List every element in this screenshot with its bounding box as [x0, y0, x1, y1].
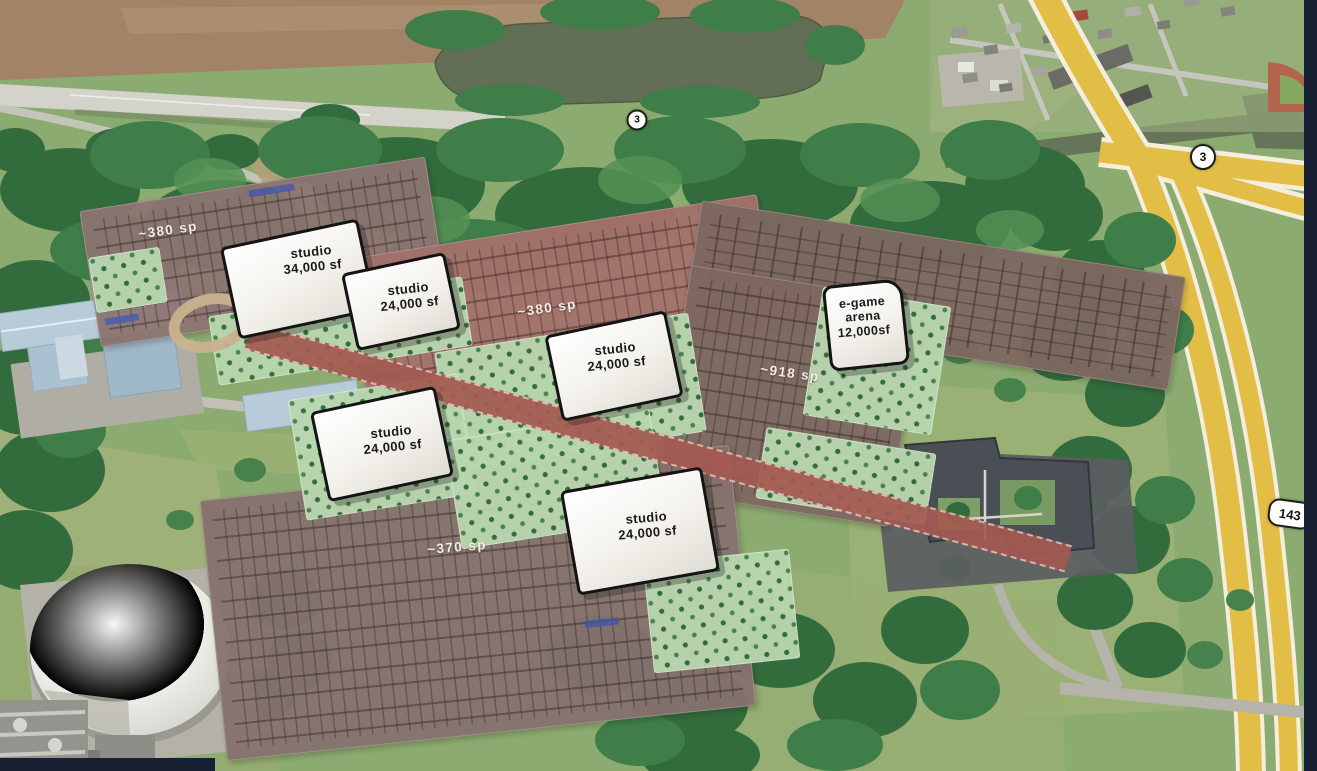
route-number: 143 — [1278, 505, 1302, 523]
building-label: e-game arena 12,000sf — [823, 293, 904, 341]
landscape-pad — [88, 247, 168, 314]
route-3-shield-small: 3 — [627, 110, 648, 131]
image-edge-bottom-left — [0, 758, 215, 771]
aerial-site-plan-rendering: studio 34,000 sf studio 24,000 sf studio… — [0, 0, 1317, 771]
image-edge-right — [1304, 0, 1317, 771]
route-number: 3 — [1200, 150, 1207, 164]
route-3-shield: 3 — [1190, 144, 1216, 170]
route-number: 3 — [634, 115, 640, 126]
